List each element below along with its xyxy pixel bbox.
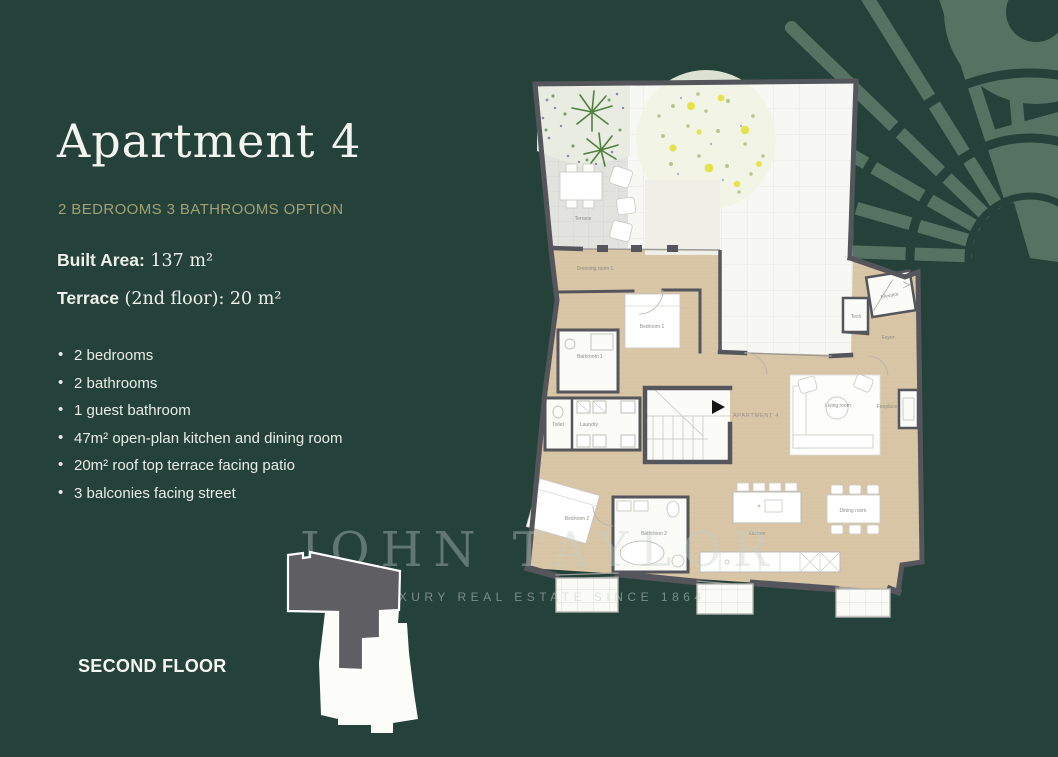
feature-item: 20m² roof top terrace facing patio — [58, 457, 343, 474]
floor-level-label: SECOND FLOOR — [78, 656, 227, 677]
feature-list: 2 bedrooms 2 bathrooms 1 guest bathroom … — [58, 347, 343, 512]
building-key-plan — [283, 543, 433, 743]
spec-built-area: Built Area: 137 m² — [57, 250, 281, 271]
living-room-furniture — [790, 374, 880, 455]
spec-built-area-value: 137 m² — [145, 251, 213, 271]
spec-list: Built Area: 137 m² Terrace (2nd floor): … — [57, 250, 281, 326]
label-kitchen: Kitchen — [749, 531, 766, 537]
spec-terrace: Terrace (2nd floor): 20 m² — [57, 288, 281, 309]
page-subtitle: 2 BEDROOMS 3 BATHROOMS OPTION — [58, 201, 344, 218]
label-bedroom-2: Bedroom 2 — [565, 516, 590, 522]
feature-item: 2 bedrooms — [58, 347, 343, 364]
label-dining-room: Dining room — [840, 508, 867, 514]
label-fireplace: Fireplace — [877, 404, 898, 410]
slide: Terrace Dressing room 1 Bedroom 1 Bathro… — [0, 0, 1058, 757]
spec-terrace-value: (2nd floor): 20 m² — [119, 289, 281, 309]
label-foyer: Foyer — [882, 335, 895, 341]
feature-item: 3 balconies facing street — [58, 485, 343, 502]
label-bedroom-1: Bedroom 1 — [640, 324, 665, 330]
page-title: Apartment 4 — [57, 114, 361, 168]
stair-core — [645, 388, 730, 462]
label-terrace: Terrace — [575, 216, 592, 222]
feature-item: 1 guest bathroom — [58, 402, 343, 419]
spec-terrace-label: Terrace — [57, 288, 119, 308]
label-living-room: Living room — [825, 403, 851, 409]
floorplan-image: Terrace Dressing room 1 Bedroom 1 Bathro… — [513, 56, 943, 631]
label-bathroom-2: Bathroom 2 — [641, 531, 667, 537]
label-dressing-room-1: Dressing room 1 — [577, 266, 614, 272]
spec-built-area-label: Built Area: — [57, 250, 145, 270]
label-apartment-4: APARTMENT 4 — [733, 413, 779, 419]
feature-item: 2 bathrooms — [58, 375, 343, 392]
label-toilet: Toilet — [552, 422, 564, 428]
label-laundry: Laundry — [580, 422, 599, 428]
label-tech: Tech — [851, 314, 862, 320]
label-bathroom-1: Bathroom 1 — [577, 354, 603, 360]
feature-item: 47m² open-plan kitchen and dining room — [58, 430, 343, 447]
